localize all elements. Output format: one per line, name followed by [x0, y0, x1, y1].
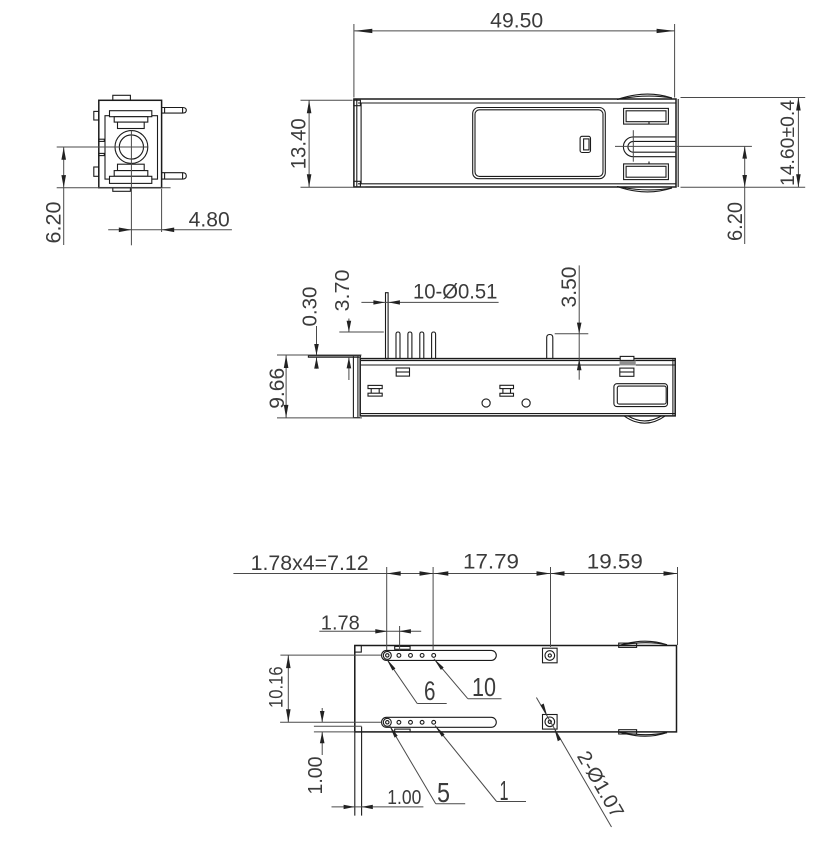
svg-text:19.59: 19.59 [587, 551, 643, 574]
svg-text:1.78: 1.78 [321, 613, 360, 635]
svg-text:0.30: 0.30 [300, 287, 322, 327]
svg-text:49.50: 49.50 [490, 10, 543, 33]
svg-text:6: 6 [424, 676, 436, 706]
svg-text:6.20: 6.20 [724, 202, 747, 241]
svg-text:3.50: 3.50 [558, 267, 581, 308]
svg-text:10: 10 [472, 672, 496, 702]
svg-text:1.00: 1.00 [305, 757, 327, 795]
svg-text:10.16: 10.16 [266, 666, 287, 708]
svg-text:6.20: 6.20 [43, 202, 66, 244]
svg-text:1: 1 [500, 775, 509, 806]
svg-text:1.00: 1.00 [387, 787, 421, 809]
svg-text:1.78x4=7.12: 1.78x4=7.12 [251, 552, 369, 575]
svg-text:9.66: 9.66 [266, 368, 289, 409]
svg-text:14.60±0.4: 14.60±0.4 [778, 100, 799, 186]
svg-text:3.70: 3.70 [332, 270, 354, 312]
svg-text:10-Ø0.51: 10-Ø0.51 [413, 280, 498, 303]
svg-text:5: 5 [437, 777, 450, 808]
svg-text:17.79: 17.79 [463, 551, 519, 574]
svg-text:13.40: 13.40 [287, 118, 310, 169]
svg-text:4.80: 4.80 [189, 209, 230, 232]
